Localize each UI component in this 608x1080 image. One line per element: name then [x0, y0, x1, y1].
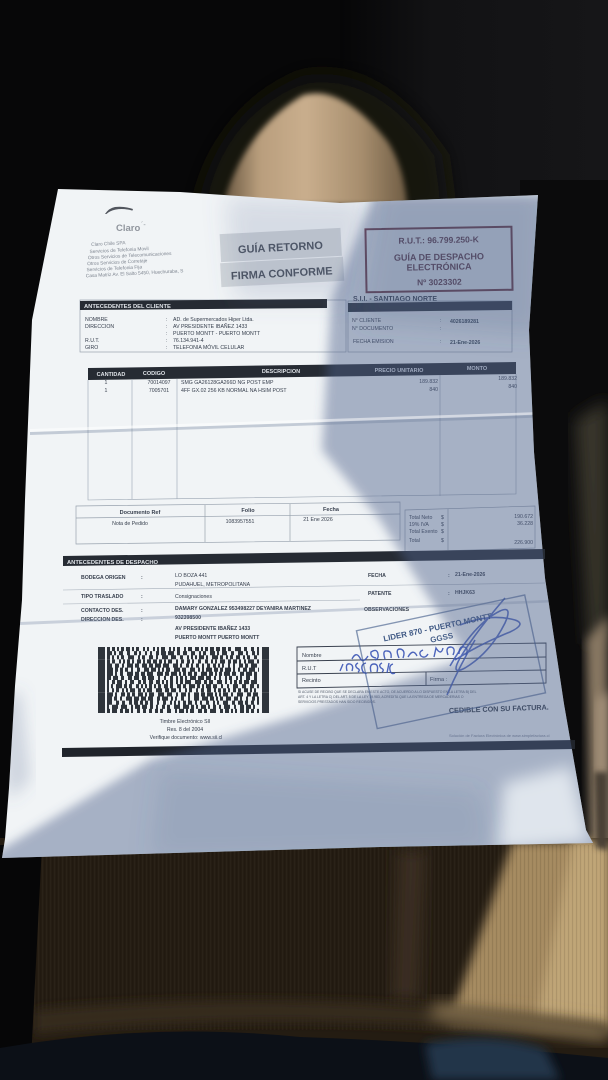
- svg-text:CANTIDAD: CANTIDAD: [97, 372, 126, 378]
- svg-text:SMG GA26128GA266D NG POST EMP: SMG GA26128GA266D NG POST EMP: [181, 380, 274, 386]
- svg-text:Verifique documento: www.sii.c: Verifique documento: www.sii.cl: [150, 735, 223, 741]
- svg-text:AV PRESIDENTE IBAÑEZ 1433: AV PRESIDENTE IBAÑEZ 1433: [175, 625, 250, 632]
- svg-text::: :: [166, 345, 167, 351]
- svg-text:PATENTE: PATENTE: [368, 591, 392, 597]
- svg-text:Fecha: Fecha: [323, 507, 340, 513]
- svg-text:TELEFONIA MÓVIL CELULAR: TELEFONIA MÓVIL CELULAR: [173, 344, 245, 351]
- svg-text:CONTACTO DES.: CONTACTO DES.: [81, 608, 124, 614]
- svg-text:R.U.T.: R.U.T.: [85, 338, 99, 344]
- svg-text:7005701: 7005701: [149, 388, 169, 394]
- svg-text:76.134.941-4: 76.134.941-4: [173, 338, 204, 344]
- svg-text:AD. de Supermercados Hiper Ltd: AD. de Supermercados Hiper Ltda.: [173, 317, 254, 323]
- svg-text:1: 1: [105, 388, 108, 394]
- svg-text:Recinto: Recinto: [302, 678, 321, 684]
- svg-text::: :: [141, 575, 143, 581]
- svg-text:CODIGO: CODIGO: [143, 371, 166, 377]
- svg-text:Claro: Claro: [116, 223, 140, 234]
- svg-text:AV PRESIDENTE IBAÑEZ 1433: AV PRESIDENTE IBAÑEZ 1433: [173, 323, 247, 330]
- svg-text:ANTECEDENTES DE DESPACHO: ANTECEDENTES DE DESPACHO: [67, 560, 159, 566]
- svg-text::: :: [166, 317, 167, 323]
- svg-text:NOMBRE: NOMBRE: [85, 317, 108, 323]
- svg-text:FECHA: FECHA: [368, 573, 386, 579]
- svg-text::: :: [166, 331, 167, 337]
- svg-text:LO BOZA 441: LO BOZA 441: [175, 573, 207, 579]
- svg-text:GIRO: GIRO: [85, 345, 98, 351]
- svg-text:PUDAHUEL, METROPOLITANA: PUDAHUEL, METROPOLITANA: [175, 582, 251, 588]
- svg-text:Res. 8 del 2004: Res. 8 del 2004: [167, 727, 203, 733]
- svg-text:ANTECEDENTES DEL CLIENTE: ANTECEDENTES DEL CLIENTE: [84, 304, 171, 310]
- svg-text:4FF GX.02 256 KB NORMAL NA HSI: 4FF GX.02 256 KB NORMAL NA HSIM POST: [181, 388, 287, 394]
- svg-text:R.U.T: R.U.T: [302, 666, 317, 672]
- svg-text:PUERTO MONTT - PUERTO MONTT: PUERTO MONTT - PUERTO MONTT: [173, 331, 261, 337]
- svg-text:Timbre Electrónico SII: Timbre Electrónico SII: [160, 719, 211, 725]
- svg-text:´-: ´-: [141, 222, 146, 229]
- svg-text:TIPO TRASLADO: TIPO TRASLADO: [81, 594, 123, 600]
- svg-text:BODEGA ORIGEN: BODEGA ORIGEN: [81, 575, 126, 581]
- svg-text:1: 1: [105, 380, 108, 386]
- svg-text:1083957551: 1083957551: [226, 519, 255, 525]
- svg-text::: :: [141, 608, 143, 614]
- svg-text::: :: [166, 324, 167, 330]
- svg-text::: :: [141, 594, 143, 600]
- svg-text:Nota de Pedido: Nota de Pedido: [112, 521, 148, 527]
- svg-text:Folio: Folio: [241, 508, 255, 514]
- svg-text:DESCRIPCION: DESCRIPCION: [262, 369, 300, 375]
- svg-text:Documento Ref: Documento Ref: [120, 510, 161, 516]
- svg-text::: :: [166, 338, 167, 344]
- svg-text:DIRECCION: DIRECCION: [85, 324, 114, 330]
- svg-text:21 Ene 2026: 21 Ene 2026: [303, 517, 333, 523]
- svg-text:Nombre: Nombre: [302, 653, 322, 659]
- svg-text:70014097: 70014097: [147, 380, 170, 386]
- svg-text:PUERTO MONTT PUERTO MONTT: PUERTO MONTT PUERTO MONTT: [175, 635, 260, 641]
- svg-text:Consignaciones: Consignaciones: [175, 594, 212, 600]
